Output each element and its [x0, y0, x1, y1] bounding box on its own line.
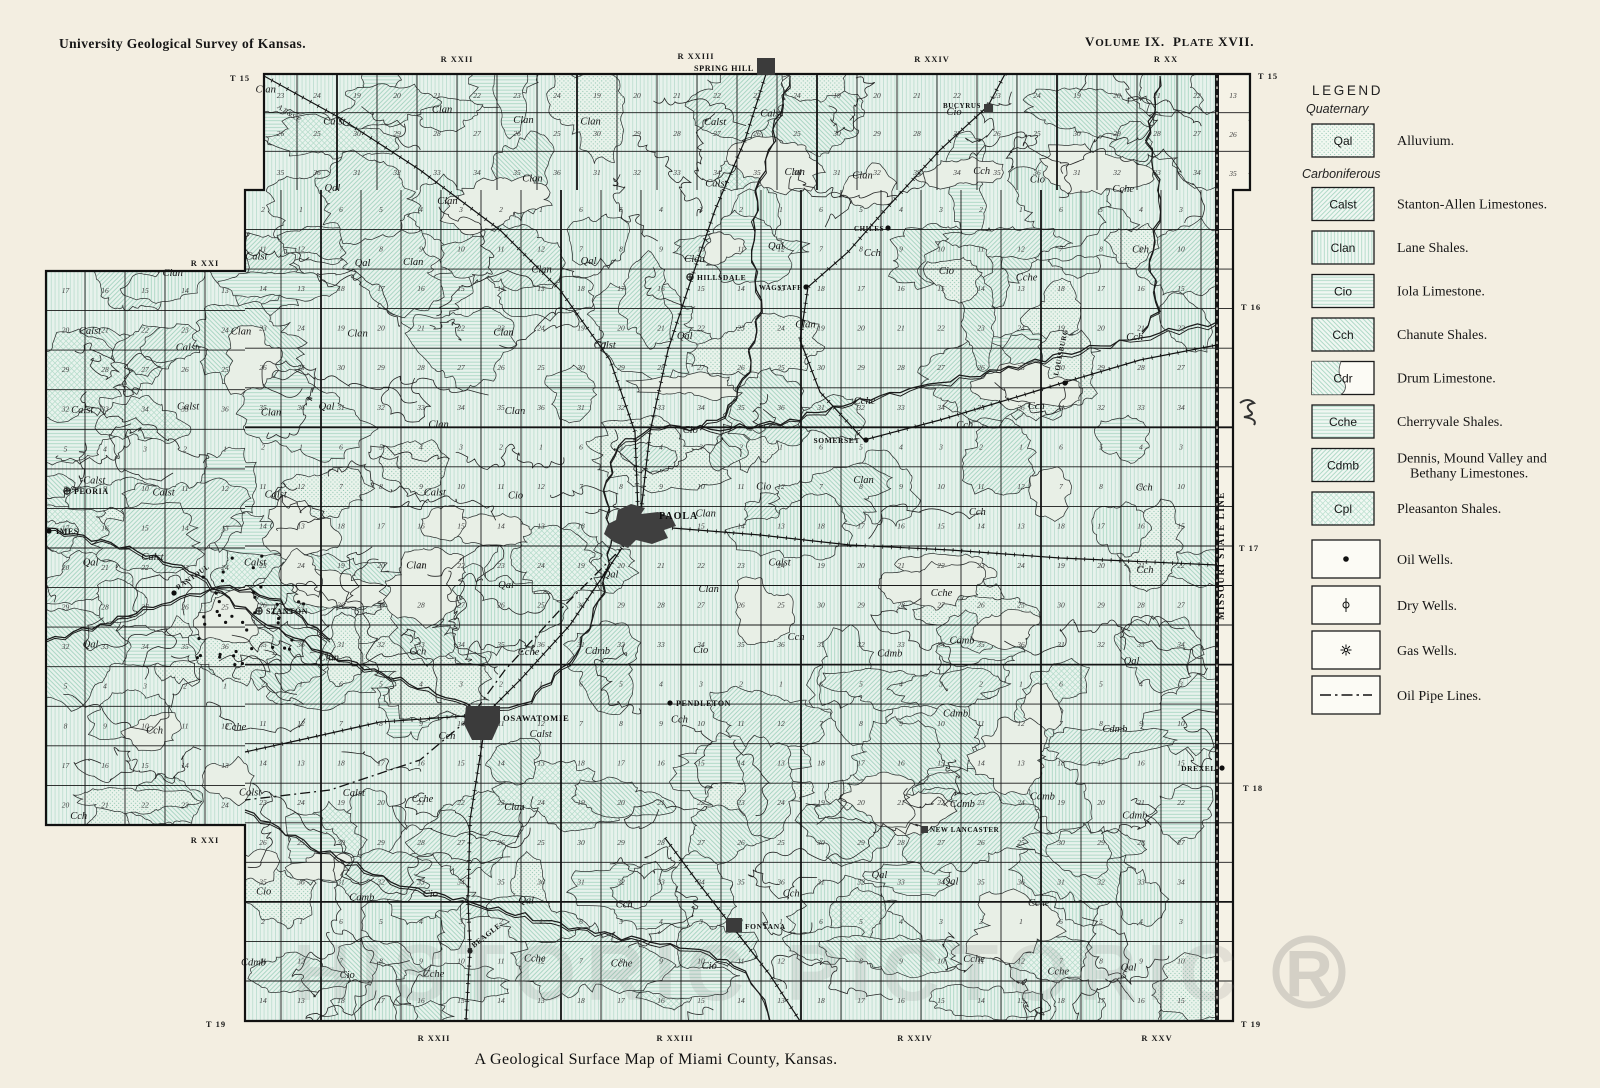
svg-text:11: 11 — [182, 721, 189, 730]
svg-text:29: 29 — [873, 129, 881, 138]
svg-text:Qal: Qal — [1334, 134, 1353, 148]
svg-text:Cch: Cch — [1137, 565, 1154, 576]
svg-text:28: 28 — [657, 363, 665, 372]
svg-text:6: 6 — [819, 205, 823, 214]
svg-text:22: 22 — [697, 561, 705, 570]
svg-text:Cche: Cche — [1329, 415, 1357, 429]
svg-text:OSAWATOMIE: OSAWATOMIE — [503, 713, 569, 723]
svg-text:10: 10 — [1177, 482, 1185, 491]
svg-text:31: 31 — [816, 403, 825, 412]
svg-text:1: 1 — [1019, 205, 1023, 214]
svg-text:Clan: Clan — [504, 802, 524, 813]
svg-text:32: 32 — [1096, 403, 1105, 412]
svg-text:26: 26 — [277, 129, 285, 138]
svg-text:8: 8 — [619, 482, 623, 491]
svg-text:Cch: Cch — [1028, 401, 1045, 412]
svg-text:28: 28 — [433, 129, 441, 138]
svg-text:15: 15 — [937, 759, 945, 768]
svg-text:14: 14 — [181, 523, 189, 532]
svg-text:32: 32 — [872, 168, 881, 177]
svg-text:36: 36 — [296, 403, 305, 412]
svg-text:2: 2 — [739, 680, 743, 689]
svg-text:13: 13 — [297, 521, 305, 530]
svg-text:13: 13 — [537, 759, 545, 768]
svg-text:25: 25 — [297, 363, 305, 372]
svg-text:Cdmb: Cdmb — [241, 957, 266, 968]
svg-text:6: 6 — [579, 442, 583, 451]
svg-text:34: 34 — [140, 405, 149, 414]
svg-text:33: 33 — [100, 405, 109, 414]
svg-text:9: 9 — [659, 482, 663, 491]
svg-text:24: 24 — [221, 800, 229, 809]
svg-text:25: 25 — [1017, 601, 1025, 610]
svg-text:Qal: Qal — [677, 331, 693, 342]
svg-text:10: 10 — [457, 482, 465, 491]
svg-text:6: 6 — [579, 917, 583, 926]
svg-text:22: 22 — [937, 798, 945, 807]
svg-text:DREXEL: DREXEL — [1181, 764, 1216, 773]
svg-text:3: 3 — [1178, 442, 1183, 451]
svg-text:28: 28 — [101, 365, 109, 374]
svg-text:1: 1 — [539, 917, 543, 926]
svg-text:24: 24 — [1033, 91, 1041, 100]
svg-text:16: 16 — [1137, 521, 1145, 530]
svg-text:36: 36 — [552, 168, 561, 177]
svg-text:R XXIV: R XXIV — [897, 1034, 933, 1043]
svg-text:5: 5 — [859, 917, 863, 926]
svg-text:3: 3 — [698, 205, 703, 214]
svg-text:Clan: Clan — [505, 406, 525, 417]
svg-text:4: 4 — [899, 442, 903, 451]
svg-text:21: 21 — [1137, 798, 1145, 807]
svg-text:13: 13 — [1017, 521, 1025, 530]
svg-text:25: 25 — [553, 129, 561, 138]
svg-text:Qal: Qal — [1124, 656, 1140, 667]
svg-text:8: 8 — [379, 482, 383, 491]
svg-text:28: 28 — [673, 129, 681, 138]
svg-text:R XXI: R XXI — [191, 259, 220, 268]
svg-text:18: 18 — [1057, 284, 1065, 293]
svg-text:Dry Wells.: Dry Wells. — [1397, 599, 1457, 614]
svg-text:12: 12 — [297, 719, 305, 728]
svg-text:10: 10 — [141, 484, 149, 493]
svg-text:30: 30 — [336, 601, 345, 610]
svg-text:1: 1 — [779, 442, 783, 451]
svg-text:6: 6 — [819, 680, 823, 689]
svg-text:19: 19 — [817, 561, 825, 570]
svg-text:IMES: IMES — [56, 527, 79, 536]
svg-text:18: 18 — [1057, 521, 1065, 530]
svg-text:34: 34 — [696, 403, 705, 412]
svg-text:21: 21 — [101, 326, 109, 335]
svg-text:9: 9 — [103, 721, 107, 730]
svg-text:1: 1 — [539, 680, 543, 689]
svg-text:24: 24 — [777, 798, 785, 807]
svg-text:20: 20 — [377, 561, 385, 570]
svg-text:33: 33 — [1136, 403, 1145, 412]
svg-text:Clan: Clan — [1331, 241, 1356, 255]
svg-text:Cpl: Cpl — [1334, 502, 1352, 516]
svg-text:15: 15 — [457, 759, 465, 768]
svg-text:21: 21 — [1153, 91, 1161, 100]
svg-text:34: 34 — [1176, 403, 1185, 412]
svg-text:26: 26 — [497, 601, 505, 610]
svg-text:35: 35 — [180, 642, 189, 651]
svg-text:T 19: T 19 — [206, 1019, 226, 1029]
svg-text:Clan: Clan — [698, 584, 718, 595]
svg-text:Cio: Cio — [256, 886, 271, 897]
svg-text:1: 1 — [299, 205, 303, 214]
svg-text:Cdmb: Cdmb — [1327, 459, 1359, 473]
svg-text:26: 26 — [977, 601, 985, 610]
svg-text:Calst: Calst — [424, 488, 447, 499]
svg-text:30: 30 — [816, 838, 825, 847]
svg-text:Clan: Clan — [347, 328, 367, 339]
svg-text:Cdmb: Cdmb — [1030, 791, 1055, 802]
svg-text:36: 36 — [220, 642, 229, 651]
svg-text:15: 15 — [141, 523, 149, 532]
svg-text:17: 17 — [62, 286, 70, 295]
svg-text:18: 18 — [337, 521, 345, 530]
svg-text:13: 13 — [221, 286, 229, 295]
svg-text:4: 4 — [419, 442, 423, 451]
svg-text:13: 13 — [1229, 91, 1237, 100]
svg-text:21: 21 — [101, 800, 109, 809]
svg-text:MISSOURI STATE LINE: MISSOURI STATE LINE — [1216, 491, 1226, 620]
svg-text:21: 21 — [897, 798, 905, 807]
svg-text:10: 10 — [457, 245, 465, 254]
svg-text:Cdmb: Cdmb — [949, 636, 974, 647]
svg-text:33: 33 — [656, 640, 665, 649]
svg-text:Cio: Cio — [693, 645, 708, 656]
svg-text:Cdr: Cdr — [1333, 372, 1352, 386]
svg-text:21: 21 — [897, 324, 905, 333]
svg-text:29: 29 — [1097, 838, 1105, 847]
svg-text:36: 36 — [776, 640, 785, 649]
svg-text:27: 27 — [697, 601, 705, 610]
svg-text:20: 20 — [1097, 561, 1105, 570]
svg-text:26: 26 — [259, 838, 267, 847]
svg-text:26: 26 — [977, 838, 985, 847]
svg-text:Clan: Clan — [255, 84, 275, 95]
svg-text:6: 6 — [1059, 442, 1063, 451]
svg-text:27: 27 — [697, 363, 705, 372]
svg-text:6: 6 — [339, 205, 343, 214]
svg-text:Calst: Calst — [177, 401, 200, 412]
svg-text:5: 5 — [619, 205, 623, 214]
svg-text:18: 18 — [577, 759, 585, 768]
svg-text:19: 19 — [337, 324, 345, 333]
svg-text:31: 31 — [576, 640, 585, 649]
svg-text:17: 17 — [377, 521, 385, 530]
svg-text:11: 11 — [738, 245, 745, 254]
svg-text:22: 22 — [1193, 91, 1201, 100]
svg-text:16: 16 — [657, 759, 665, 768]
svg-text:1: 1 — [299, 680, 303, 689]
svg-text:2: 2 — [739, 205, 743, 214]
svg-text:8: 8 — [859, 719, 863, 728]
svg-text:10: 10 — [697, 719, 705, 728]
svg-text:13: 13 — [1017, 759, 1025, 768]
svg-text:3: 3 — [698, 680, 703, 689]
svg-text:Cche: Cche — [931, 588, 953, 599]
svg-text:Chanute Shales.: Chanute Shales. — [1397, 328, 1487, 343]
svg-text:Cio: Cio — [423, 889, 438, 900]
svg-text:29: 29 — [617, 838, 625, 847]
svg-text:3: 3 — [938, 442, 943, 451]
svg-text:6: 6 — [1059, 917, 1063, 926]
svg-text:24: 24 — [777, 324, 785, 333]
svg-text:23: 23 — [993, 91, 1001, 100]
svg-text:29: 29 — [1097, 363, 1105, 372]
svg-text:20: 20 — [633, 91, 641, 100]
svg-text:24: 24 — [553, 91, 561, 100]
svg-text:24: 24 — [1017, 798, 1025, 807]
svg-text:19: 19 — [577, 798, 585, 807]
svg-text:11: 11 — [978, 482, 985, 491]
svg-text:4: 4 — [659, 205, 663, 214]
svg-text:32: 32 — [632, 168, 641, 177]
svg-text:11: 11 — [182, 484, 189, 493]
svg-text:R XXIII: R XXIII — [677, 52, 714, 61]
svg-text:2: 2 — [979, 442, 983, 451]
svg-text:16: 16 — [657, 284, 665, 293]
svg-text:7: 7 — [339, 245, 343, 254]
svg-text:25: 25 — [537, 601, 545, 610]
svg-text:22: 22 — [141, 326, 149, 335]
svg-text:10: 10 — [697, 482, 705, 491]
svg-text:28: 28 — [417, 363, 425, 372]
svg-text:16: 16 — [897, 284, 905, 293]
svg-text:23: 23 — [277, 91, 285, 100]
svg-text:14: 14 — [977, 521, 985, 530]
svg-text:Pleasanton Shales.: Pleasanton Shales. — [1397, 502, 1501, 517]
svg-text:20: 20 — [1097, 798, 1105, 807]
svg-text:Clan: Clan — [522, 173, 542, 184]
svg-text:20: 20 — [393, 91, 401, 100]
svg-text:16: 16 — [417, 521, 425, 530]
svg-text:36: 36 — [536, 877, 545, 886]
svg-text:23: 23 — [259, 798, 267, 807]
svg-text:R XXII: R XXII — [441, 55, 474, 64]
svg-text:5: 5 — [1099, 917, 1103, 926]
svg-text:21: 21 — [913, 91, 921, 100]
svg-text:1: 1 — [779, 205, 783, 214]
svg-text:35: 35 — [976, 877, 985, 886]
svg-text:14: 14 — [737, 521, 745, 530]
svg-text:19: 19 — [817, 798, 825, 807]
svg-text:18: 18 — [817, 284, 825, 293]
svg-text:3: 3 — [1178, 205, 1183, 214]
svg-text:36: 36 — [1016, 640, 1025, 649]
svg-text:21: 21 — [417, 324, 425, 333]
svg-text:3: 3 — [458, 442, 463, 451]
svg-text:Cche: Cche — [1112, 184, 1134, 195]
svg-text:25: 25 — [537, 363, 545, 372]
svg-text:26: 26 — [181, 365, 189, 374]
svg-text:29: 29 — [617, 601, 625, 610]
svg-text:Cio: Cio — [1030, 174, 1045, 185]
svg-text:6: 6 — [1059, 680, 1063, 689]
svg-text:5: 5 — [379, 205, 383, 214]
svg-text:Clan: Clan — [432, 105, 452, 116]
svg-text:30: 30 — [576, 838, 585, 847]
svg-text:Cio: Cio — [939, 266, 954, 277]
svg-text:25: 25 — [221, 365, 229, 374]
svg-text:Cio: Cio — [756, 482, 771, 493]
svg-text:25: 25 — [221, 603, 229, 612]
svg-text:11: 11 — [498, 482, 505, 491]
svg-text:6: 6 — [339, 442, 343, 451]
svg-text:T 19: T 19 — [1241, 1019, 1261, 1029]
svg-text:Cch: Cch — [671, 714, 688, 725]
svg-text:12: 12 — [537, 482, 545, 491]
svg-text:Clan: Clan — [684, 254, 704, 265]
svg-text:20: 20 — [377, 798, 385, 807]
svg-text:Calst: Calst — [769, 557, 792, 568]
svg-text:17: 17 — [1097, 759, 1105, 768]
svg-text:29: 29 — [393, 129, 401, 138]
svg-text:7: 7 — [579, 245, 583, 254]
svg-text:34: 34 — [696, 877, 705, 886]
svg-text:3: 3 — [458, 917, 463, 926]
svg-text:34: 34 — [1192, 168, 1201, 177]
svg-text:19: 19 — [1057, 561, 1065, 570]
svg-text:22: 22 — [457, 324, 465, 333]
svg-text:Calst: Calst — [530, 729, 553, 740]
svg-text:25: 25 — [777, 601, 785, 610]
svg-text:28: 28 — [657, 601, 665, 610]
svg-text:14: 14 — [259, 284, 267, 293]
svg-text:Cch: Cch — [1132, 245, 1149, 256]
svg-text:12: 12 — [221, 484, 229, 493]
svg-text:7: 7 — [819, 719, 823, 728]
svg-text:24: 24 — [297, 798, 305, 807]
svg-text:20: 20 — [857, 324, 865, 333]
svg-text:22: 22 — [473, 91, 481, 100]
svg-text:20: 20 — [62, 800, 70, 809]
svg-text:Clan: Clan — [695, 508, 715, 519]
svg-text:29: 29 — [857, 838, 865, 847]
svg-text:15: 15 — [141, 286, 149, 295]
svg-text:23: 23 — [181, 563, 189, 572]
svg-text:15: 15 — [1177, 284, 1185, 293]
svg-text:19: 19 — [337, 561, 345, 570]
svg-text:18: 18 — [577, 284, 585, 293]
svg-text:HISTORIC PICTORIC: HISTORIC PICTORIC — [293, 928, 1247, 1017]
svg-text:14: 14 — [737, 759, 745, 768]
svg-text:36: 36 — [776, 877, 785, 886]
svg-text:35: 35 — [496, 640, 505, 649]
svg-text:29: 29 — [377, 838, 385, 847]
svg-text:28: 28 — [417, 601, 425, 610]
svg-text:Cch: Cch — [969, 507, 986, 518]
svg-text:3: 3 — [938, 205, 943, 214]
svg-text:3: 3 — [938, 680, 943, 689]
svg-text:Cche: Cche — [225, 722, 247, 733]
svg-text:26: 26 — [977, 363, 985, 372]
svg-text:CHILES: CHILES — [854, 225, 884, 233]
svg-text:26: 26 — [497, 838, 505, 847]
svg-text:31: 31 — [1072, 168, 1081, 177]
svg-text:32: 32 — [856, 640, 865, 649]
svg-text:26: 26 — [513, 129, 521, 138]
svg-text:15: 15 — [457, 521, 465, 530]
svg-text:27: 27 — [141, 365, 149, 374]
svg-text:T 16: T 16 — [1241, 302, 1261, 312]
svg-text:20: 20 — [377, 324, 385, 333]
svg-text:T 18: T 18 — [1243, 783, 1263, 793]
svg-text:30: 30 — [816, 363, 825, 372]
svg-text:7: 7 — [1059, 482, 1063, 491]
svg-text:36: 36 — [1016, 403, 1025, 412]
svg-text:5: 5 — [1099, 680, 1103, 689]
svg-text:HILLSDALE: HILLSDALE — [697, 273, 746, 282]
svg-text:13: 13 — [221, 761, 229, 770]
svg-text:31: 31 — [1056, 640, 1065, 649]
svg-text:2: 2 — [261, 205, 265, 214]
svg-text:4: 4 — [103, 444, 107, 453]
svg-text:Carboniferous: Carboniferous — [1302, 167, 1381, 181]
svg-text:33: 33 — [896, 877, 905, 886]
svg-text:19: 19 — [1073, 91, 1081, 100]
svg-text:33: 33 — [896, 403, 905, 412]
svg-text:13: 13 — [777, 759, 785, 768]
svg-text:Qal: Qal — [83, 558, 99, 569]
svg-text:35: 35 — [512, 168, 521, 177]
svg-text:Cio: Cio — [508, 491, 523, 502]
svg-text:20: 20 — [857, 561, 865, 570]
svg-text:Qal: Qal — [498, 580, 514, 591]
svg-text:36: 36 — [312, 168, 321, 177]
svg-text:23: 23 — [181, 326, 189, 335]
svg-text:Calst: Calst — [265, 489, 288, 500]
svg-text:35: 35 — [976, 640, 985, 649]
svg-text:19: 19 — [833, 91, 841, 100]
svg-text:2: 2 — [499, 680, 503, 689]
svg-text:Qal: Qal — [872, 870, 888, 881]
svg-text:Clan: Clan — [493, 328, 513, 339]
svg-text:5: 5 — [379, 442, 383, 451]
svg-text:Clan: Clan — [531, 264, 551, 275]
svg-text:9: 9 — [899, 482, 903, 491]
svg-text:5: 5 — [379, 917, 383, 926]
svg-text:10: 10 — [457, 719, 465, 728]
svg-text:35: 35 — [976, 403, 985, 412]
svg-text:Cdmb: Cdmb — [1122, 811, 1147, 822]
svg-text:R XXIV: R XXIV — [914, 55, 950, 64]
svg-text:Cdmb: Cdmb — [349, 893, 374, 904]
svg-text:3: 3 — [142, 682, 147, 691]
svg-text:Calst: Calst — [153, 488, 176, 499]
svg-text:36: 36 — [296, 877, 305, 886]
svg-text:2: 2 — [183, 444, 187, 453]
svg-text:14: 14 — [259, 521, 267, 530]
svg-text:Calst: Calst — [176, 343, 199, 354]
svg-text:32: 32 — [616, 640, 625, 649]
svg-text:17: 17 — [857, 521, 865, 530]
svg-text:5: 5 — [859, 205, 863, 214]
svg-text:Clan: Clan — [162, 268, 182, 279]
svg-text:23: 23 — [737, 324, 745, 333]
svg-text:22: 22 — [1177, 561, 1185, 570]
svg-text:Qal: Qal — [518, 895, 534, 906]
svg-text:19: 19 — [577, 561, 585, 570]
svg-text:35: 35 — [1228, 169, 1237, 178]
svg-text:23: 23 — [513, 91, 521, 100]
svg-text:35: 35 — [736, 877, 745, 886]
svg-text:28: 28 — [1137, 363, 1145, 372]
